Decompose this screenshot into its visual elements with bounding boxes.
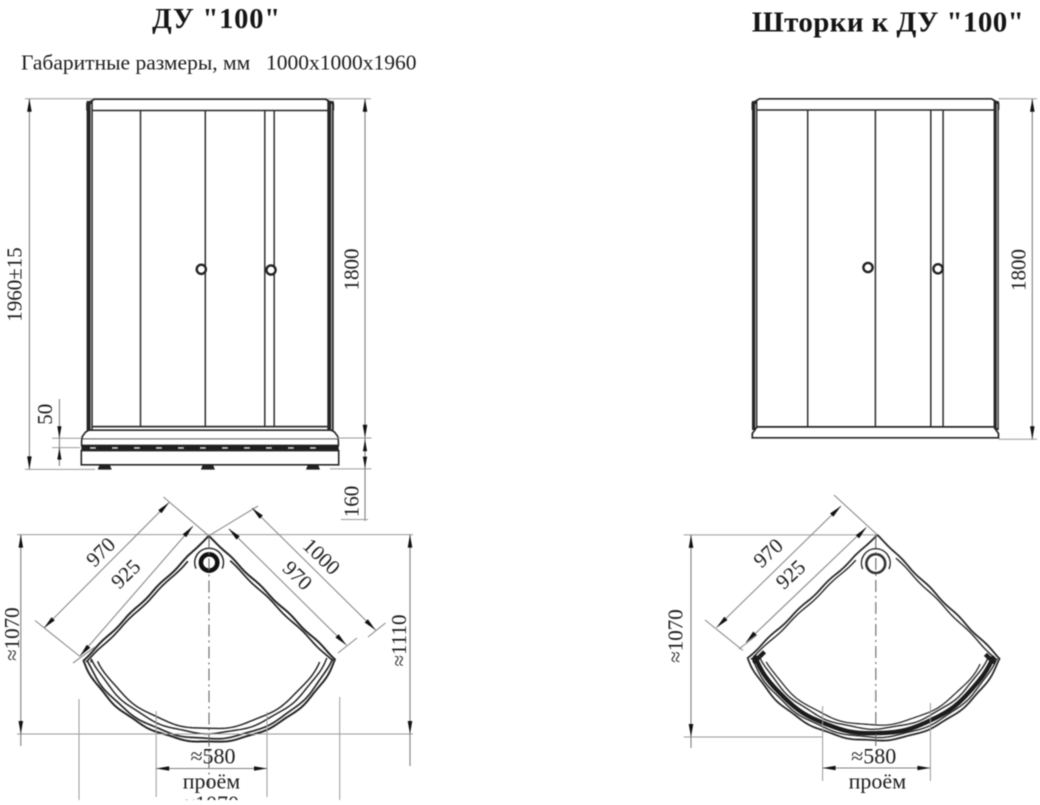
- svg-text:1000х1000х1960: 1000х1000х1960: [266, 51, 417, 75]
- svg-text:≈1070: ≈1070: [0, 607, 24, 661]
- svg-text:≈580: ≈580: [190, 744, 235, 769]
- svg-text:≈580: ≈580: [851, 744, 896, 769]
- svg-text:≈1070: ≈1070: [664, 609, 688, 663]
- svg-text:≈1070: ≈1070: [183, 791, 239, 800]
- svg-text:Габаритные размеры, мм: Габаритные размеры, мм: [21, 51, 251, 75]
- svg-text:проём: проём: [183, 768, 241, 793]
- svg-text:50: 50: [33, 404, 57, 425]
- svg-text:1800: 1800: [339, 249, 363, 291]
- svg-text:ДУ "100": ДУ "100": [152, 4, 281, 35]
- svg-text:1960±15: 1960±15: [3, 247, 27, 322]
- svg-text:160: 160: [340, 486, 364, 518]
- svg-text:1800: 1800: [1006, 249, 1030, 291]
- svg-text:Шторки к ДУ "100": Шторки к ДУ "100": [752, 7, 1024, 39]
- svg-text:проём: проём: [849, 768, 907, 793]
- svg-text:≈1110: ≈1110: [387, 615, 411, 667]
